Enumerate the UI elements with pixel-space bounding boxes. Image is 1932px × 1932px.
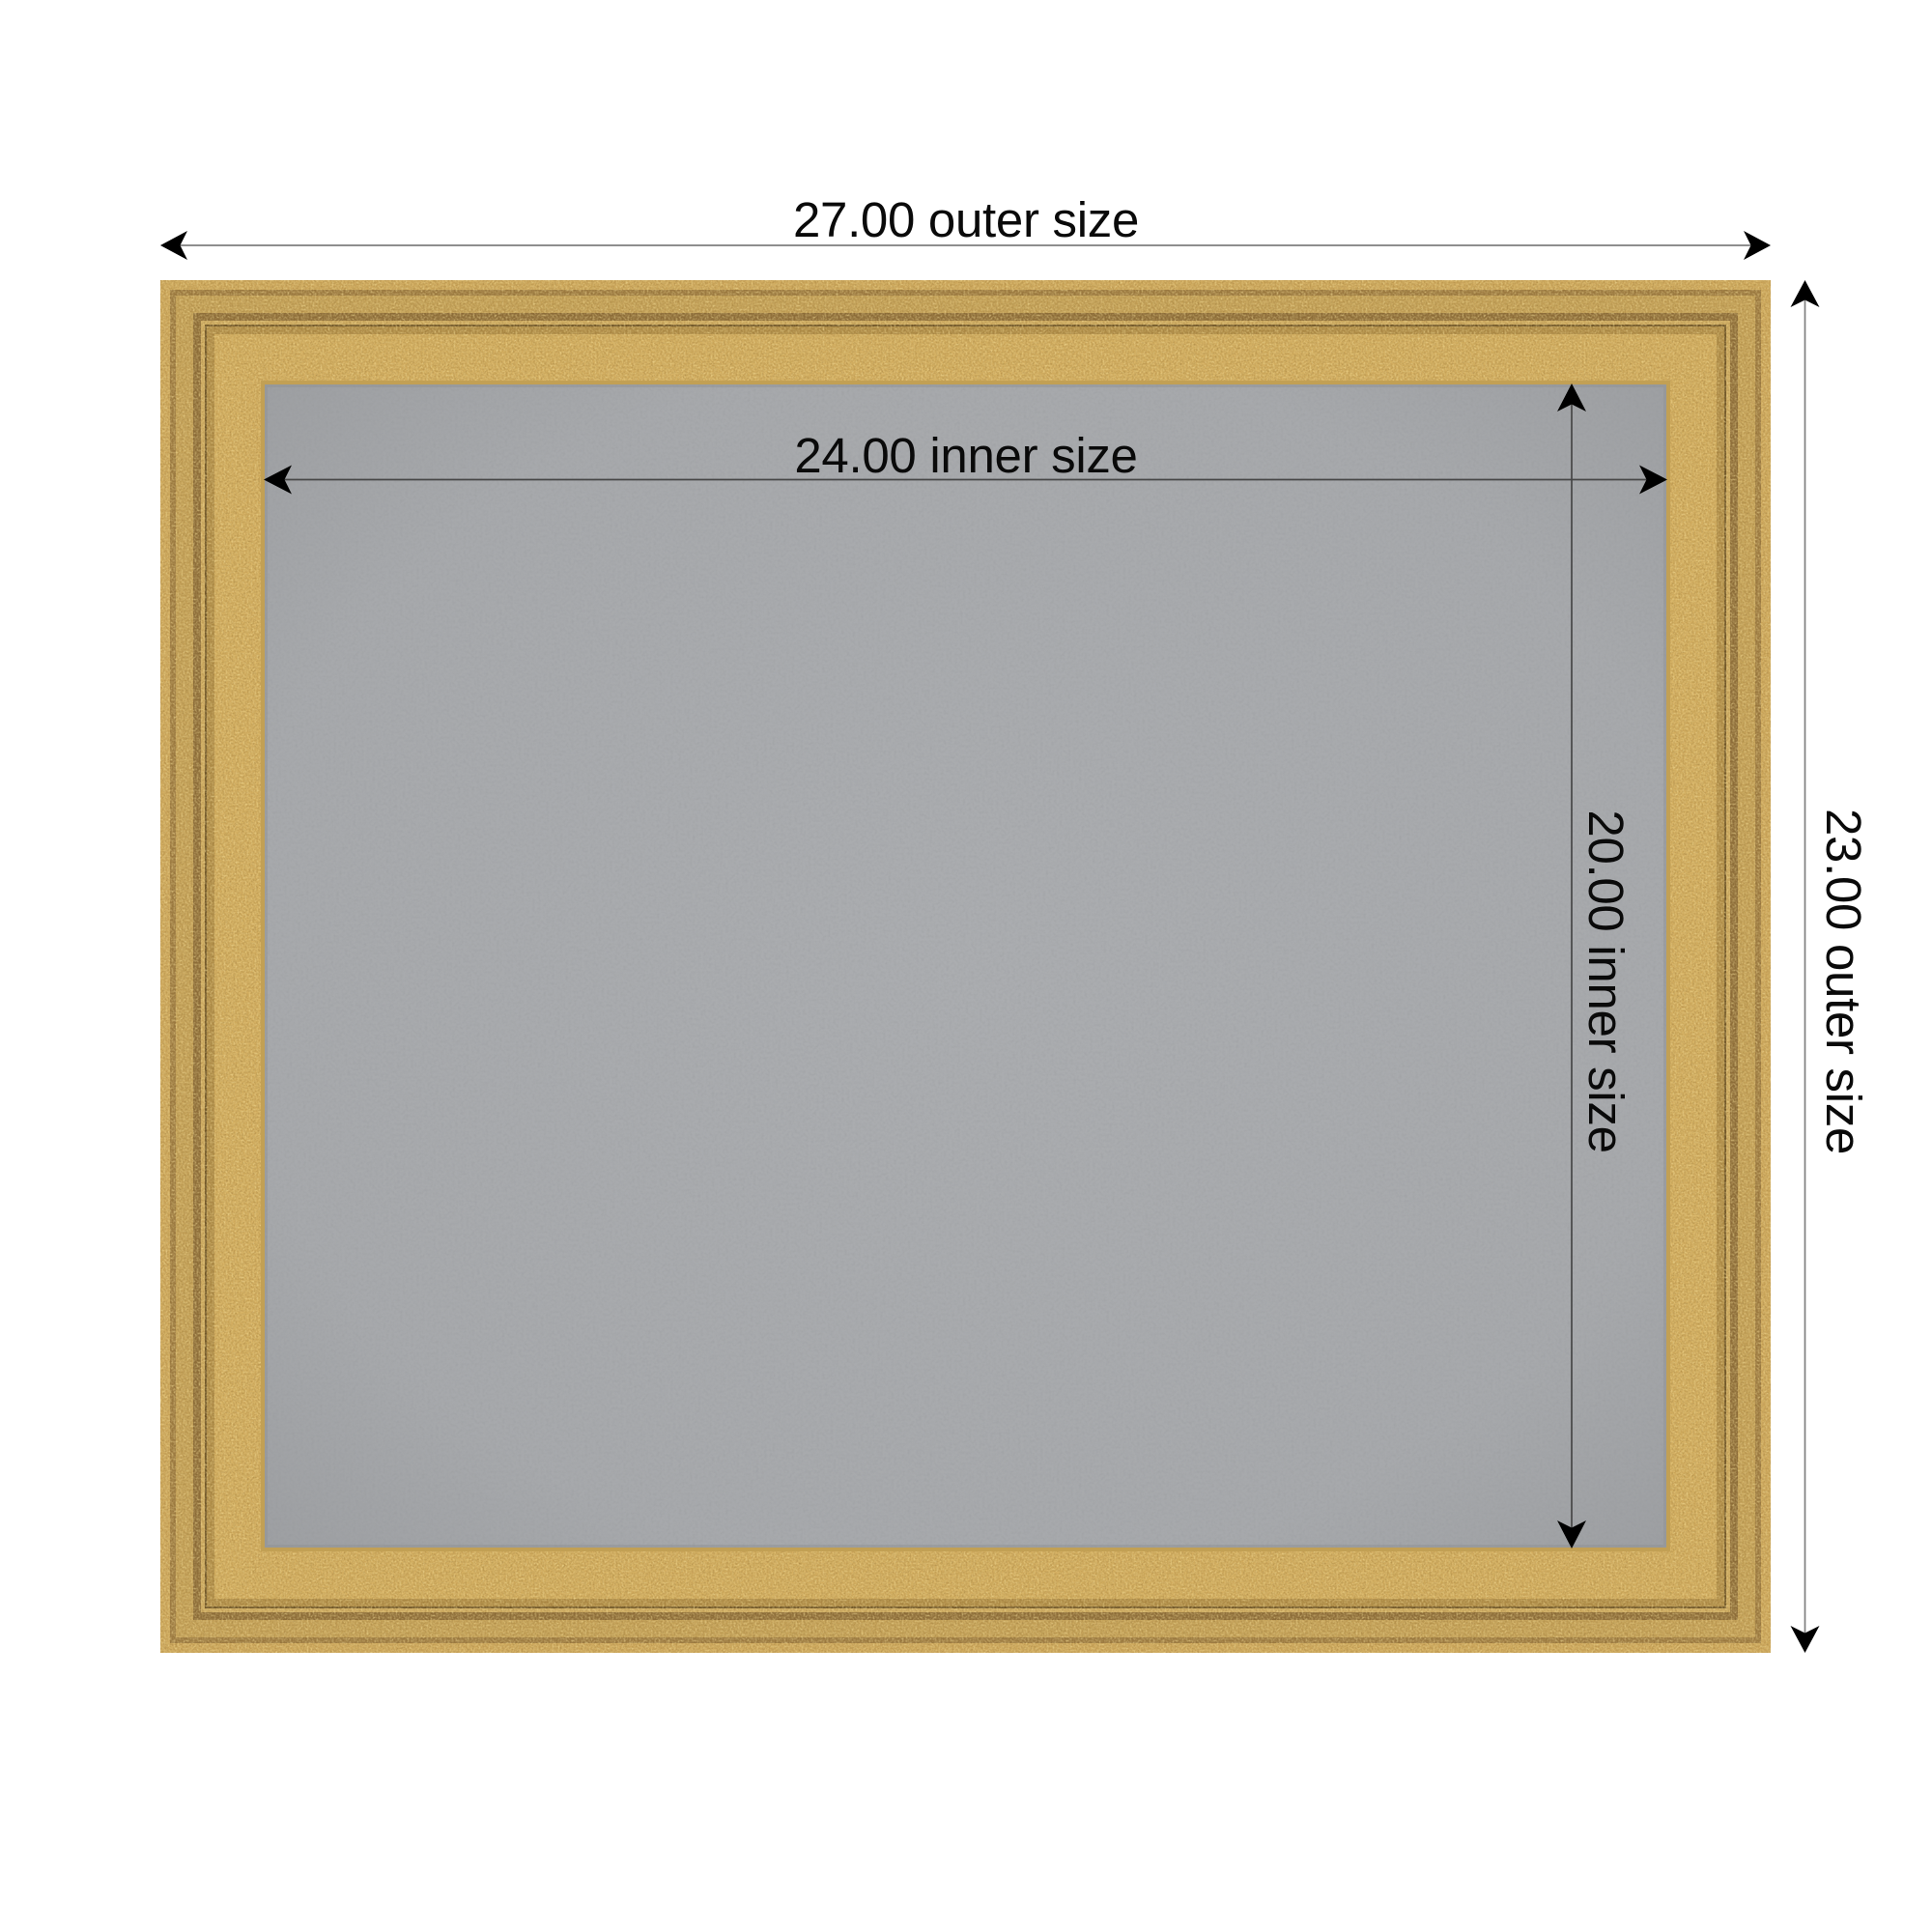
svg-text:23.00 outer size: 23.00 outer size: [1816, 809, 1871, 1154]
svg-text:24.00 inner size: 24.00 inner size: [794, 428, 1137, 483]
svg-text:20.00 inner size: 20.00 inner size: [1578, 810, 1634, 1152]
svg-text:27.00 outer size: 27.00 outer size: [793, 192, 1139, 247]
